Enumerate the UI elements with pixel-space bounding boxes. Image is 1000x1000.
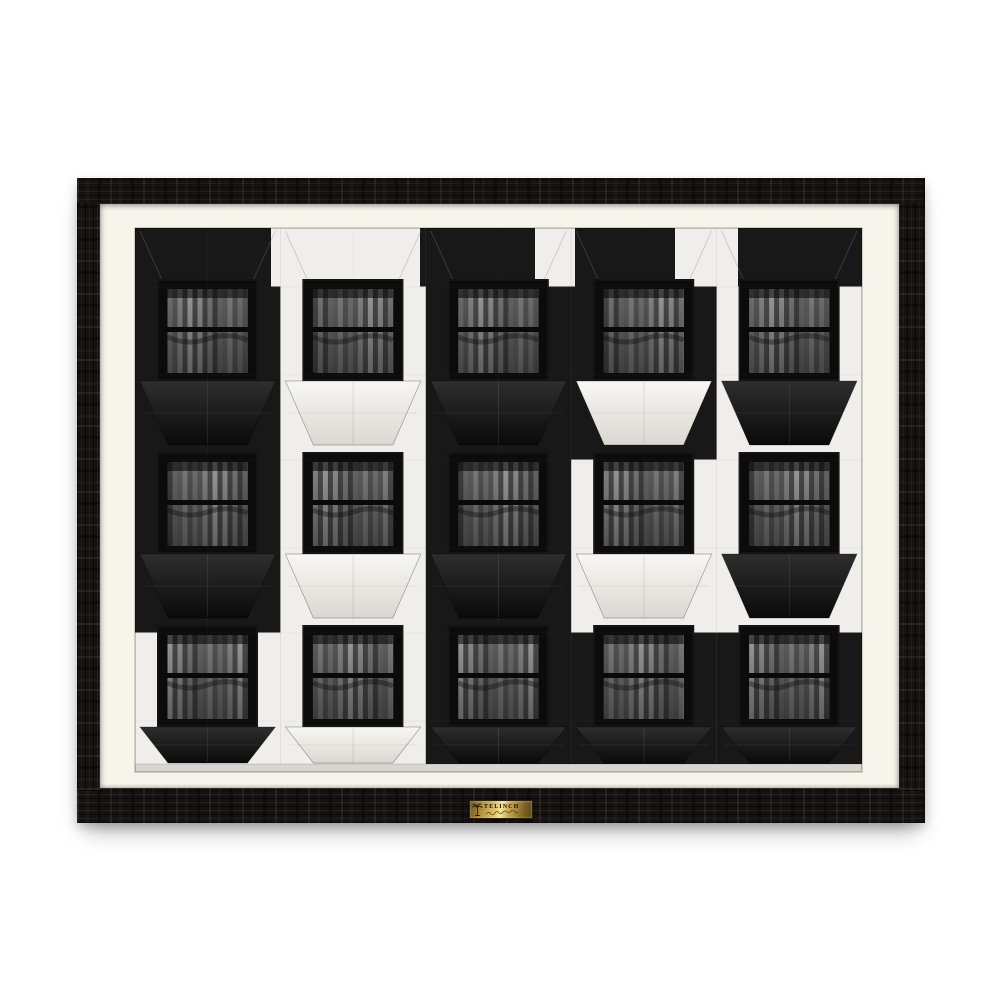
window	[739, 279, 840, 381]
window-rail	[748, 500, 830, 505]
window-rail	[748, 327, 830, 332]
curtain-top-recess	[749, 462, 829, 471]
product-photo-background: TELINCH	[0, 0, 1000, 1000]
window-rail	[748, 673, 830, 678]
frame-edge-top	[77, 178, 925, 204]
curtain-top-recess	[749, 635, 829, 644]
curtain-top-recess	[749, 289, 829, 298]
plaque-text-block: TELINCH	[484, 804, 519, 816]
mat-board	[100, 204, 899, 788]
plaque-script-flourish	[485, 810, 519, 816]
frame-edge-left	[77, 202, 100, 790]
artwork-photo	[135, 228, 862, 772]
window	[739, 452, 840, 554]
facade-base-sill	[135, 764, 862, 772]
frame-edge-right	[899, 202, 925, 790]
brand-plaque: TELINCH	[469, 800, 533, 819]
window	[739, 625, 840, 727]
palm-coconut	[476, 806, 478, 808]
picture-frame: TELINCH	[77, 178, 925, 823]
building-facade-image	[135, 228, 862, 772]
palm-tree-icon	[472, 802, 483, 817]
